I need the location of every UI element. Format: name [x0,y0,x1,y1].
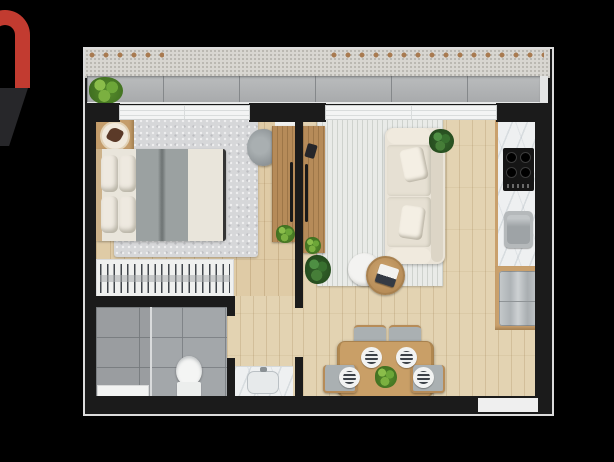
logo-mark-fragment [0,88,28,146]
balcony-deck [87,76,540,104]
wall-divider [295,110,303,308]
place-setting [339,367,360,388]
balcony-end-trim [540,76,548,104]
potted-plant-small [276,225,295,243]
wardrobe-hangers [100,264,230,293]
media-panel-handle [290,162,293,222]
bed-pillow [119,196,136,233]
vanity-sink [247,371,279,394]
logo-letter-n [0,10,30,88]
floor-plant [305,255,331,284]
dining-centerpiece-plant [375,366,397,388]
bed-pillow [101,155,118,192]
burner [520,152,531,163]
sofa-pillow [398,204,426,240]
place-setting [413,367,434,388]
burner [520,167,531,178]
media-panel-handle [305,164,308,222]
rolled-napkin [365,351,378,364]
bedroom-window [119,105,250,120]
refrigerator [499,271,537,326]
toilet [176,356,202,398]
kitchen-sink [504,211,533,248]
rolled-napkin [400,351,413,364]
bed [96,149,226,241]
window-pier [496,103,548,122]
vanity-faucet [260,367,267,372]
screen [0,0,614,462]
bed-pillow [119,155,136,192]
terrace-anchor-dots [88,51,164,59]
toilet-tank [177,382,201,397]
bed-blanket [136,149,188,241]
place-setting [396,347,417,368]
sofa-side-plant [429,129,454,153]
rolled-napkin [417,371,430,384]
sink-bowl [507,215,530,244]
potted-plant-small [305,237,321,254]
entry-door-opening [478,398,538,412]
cooktop [503,148,534,191]
wall-bathroom-stub [227,296,235,316]
wall-divider [295,357,303,398]
burner [506,167,517,178]
burner [506,152,517,163]
wall-east [535,104,552,414]
balcony-plant [89,77,123,104]
terrace-anchor-dots [330,51,544,59]
living-room-window [325,105,497,120]
wall-bathroom [227,358,235,398]
cooktop-knobs [507,184,530,188]
wall-west [85,104,96,398]
wall-closet [85,296,235,307]
place-setting [361,347,382,368]
bed-pillow [101,196,118,233]
window-pier [85,103,120,122]
rolled-napkin [343,371,356,384]
sofa-armrest [387,128,431,144]
window-pier [249,103,326,122]
